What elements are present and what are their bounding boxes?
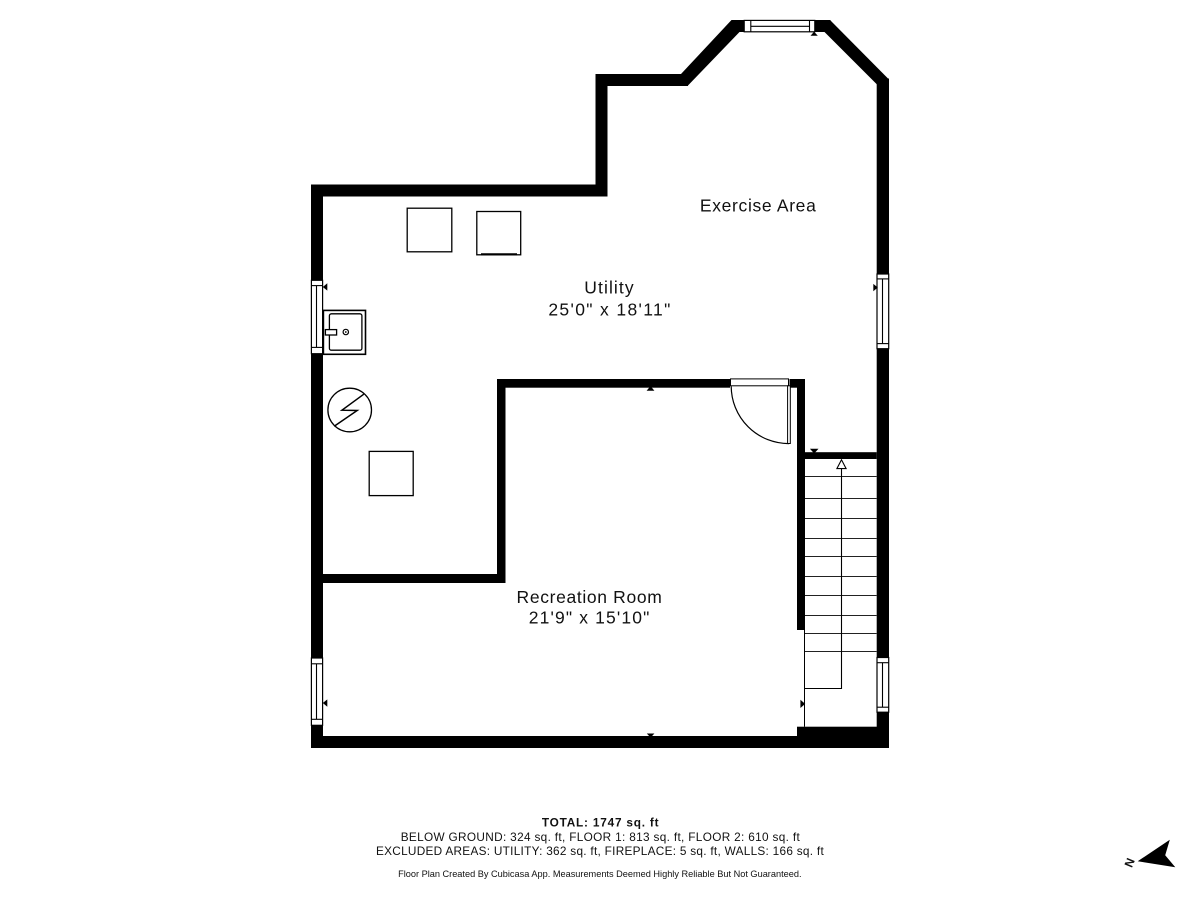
svg-text:Floor Plan Created By Cubicasa: Floor Plan Created By Cubicasa App. Meas… [398,869,801,879]
svg-text:Exercise Area: Exercise Area [700,195,817,215]
svg-text:Recreation Room: Recreation Room [517,587,663,607]
svg-text:21'9" x 15'10": 21'9" x 15'10" [529,607,651,627]
svg-text:TOTAL: 1747 sq. ft: TOTAL: 1747 sq. ft [542,815,660,829]
svg-text:25'0" x 18'11": 25'0" x 18'11" [548,300,671,320]
svg-text:EXCLUDED AREAS: UTILITY: 362 s: EXCLUDED AREAS: UTILITY: 362 sq. ft, FIR… [376,844,824,858]
svg-text:Utility: Utility [584,278,634,298]
svg-text:BELOW GROUND: 324 sq. ft, FLOO: BELOW GROUND: 324 sq. ft, FLOOR 1: 813 s… [401,830,801,844]
